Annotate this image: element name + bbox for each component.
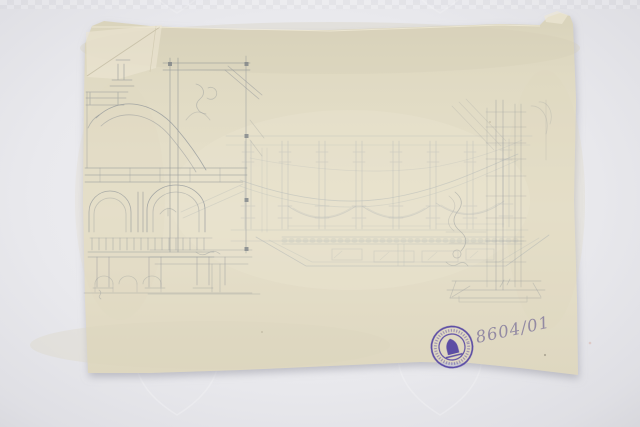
watermark-checker-band-top	[0, 0, 640, 9]
photo-of-archival-drawing: 8604/01	[0, 0, 640, 427]
photo-canvas: 8604/01	[0, 0, 640, 427]
